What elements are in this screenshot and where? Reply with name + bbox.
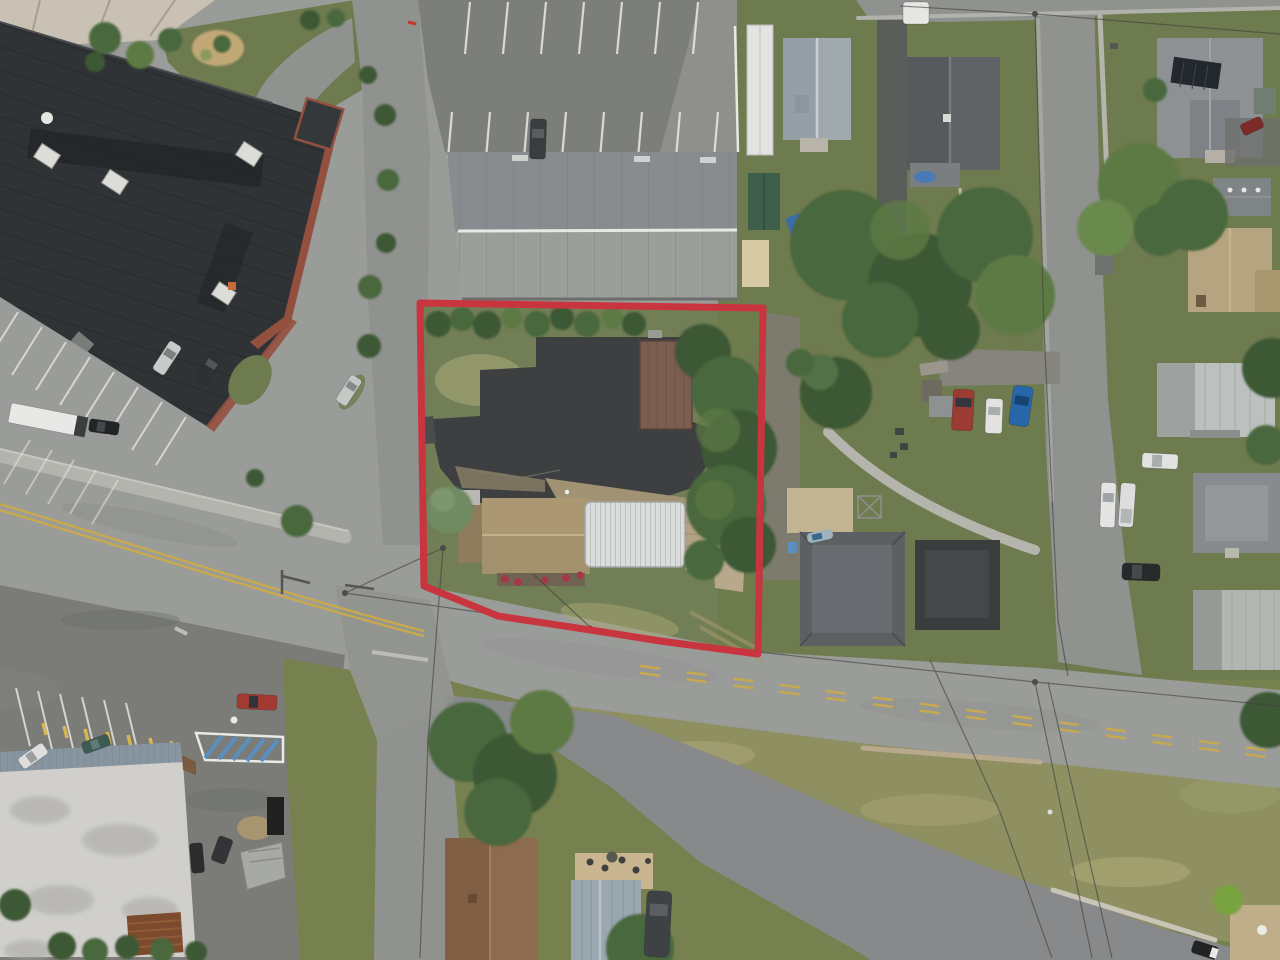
quonset-building	[585, 502, 685, 567]
tan-canopy	[742, 240, 769, 287]
dark-car-top-lot	[529, 119, 546, 160]
porch	[1190, 430, 1240, 438]
dark-suv-bottom	[644, 890, 672, 957]
white-pickup-1	[1100, 482, 1117, 527]
umbrella	[607, 852, 618, 863]
roof-ridge	[458, 230, 737, 231]
white-van-top	[903, 2, 929, 24]
chimney	[943, 114, 951, 122]
small-gray-shed	[929, 396, 954, 417]
blue-pool	[914, 171, 936, 183]
white-suv-backyard	[985, 398, 1003, 434]
large-gray-house-solar	[1157, 38, 1280, 166]
tan-patio-corner	[1230, 905, 1280, 960]
blue-bin	[788, 542, 797, 553]
porch	[800, 138, 828, 152]
corner-houses	[800, 528, 1000, 646]
aerial-photo: 53	[0, 0, 1280, 960]
white-pickup-2	[1118, 483, 1136, 528]
front-steps	[1225, 548, 1239, 558]
small-tree-ne	[1143, 78, 1167, 102]
garage-vent	[648, 330, 662, 338]
storm-drain	[1110, 43, 1118, 49]
dark-hip-roof-house	[800, 532, 905, 646]
gray-hip-house	[1193, 473, 1280, 558]
dark-suv-street	[1122, 563, 1161, 581]
white-sedan-street	[1142, 453, 1179, 470]
red-pickup-backyard	[951, 389, 974, 431]
blue-gray-house	[783, 38, 851, 152]
black-roof-house	[915, 540, 1000, 630]
aerial-photo-canvas: 53	[0, 0, 1280, 960]
warehouse-block	[408, 0, 738, 300]
chimney	[468, 894, 477, 903]
handicap-symbol	[231, 717, 238, 724]
warehouse-building	[447, 152, 737, 300]
silver-metal-house-south	[1193, 590, 1280, 670]
roof-orange-unit	[228, 282, 236, 290]
porch	[497, 573, 585, 586]
brown-roof-house	[445, 838, 537, 960]
bright-bush-embankment	[1213, 885, 1243, 915]
concrete-patio	[787, 488, 853, 533]
red-pickup-sw	[237, 693, 278, 710]
dumpster	[267, 797, 284, 835]
satellite-dish	[41, 112, 53, 124]
dark-car-rear-1	[189, 842, 205, 873]
awning	[1254, 88, 1276, 114]
